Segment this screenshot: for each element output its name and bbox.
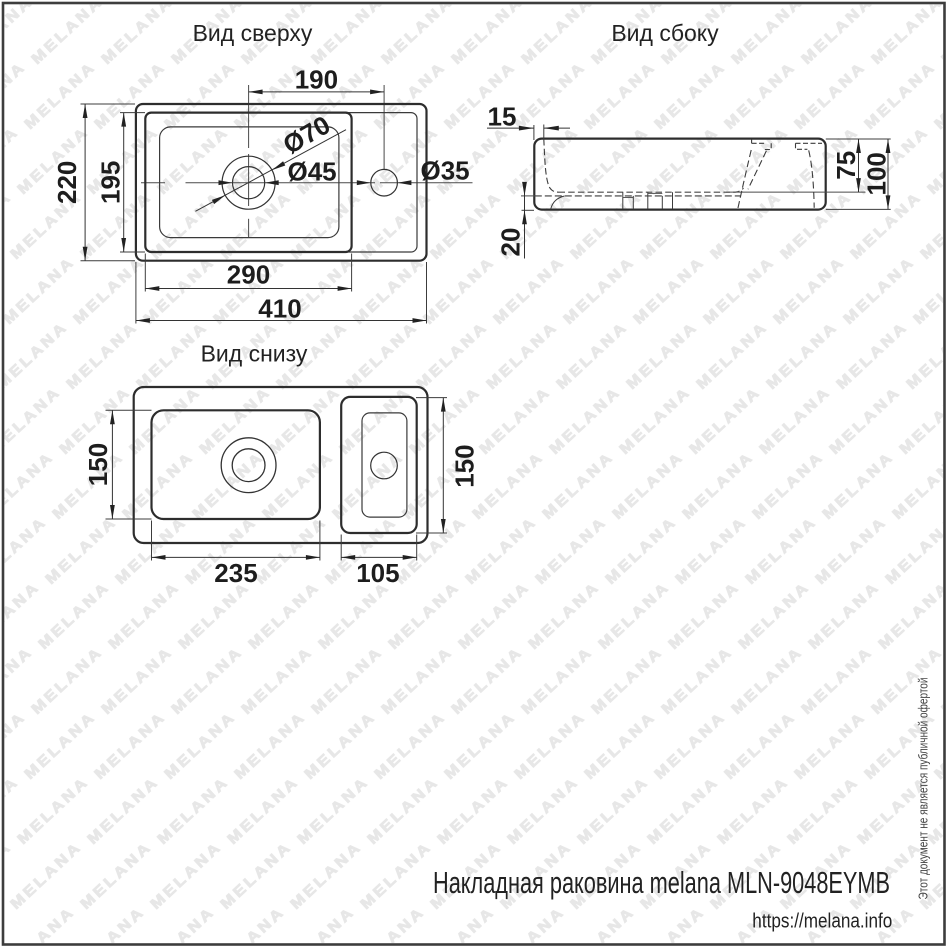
svg-text:Ø35: Ø35 — [421, 156, 470, 186]
svg-text:Накладная раковина melana MLN-: Накладная раковина melana MLN-9048EYMB — [433, 865, 890, 900]
svg-text:190: 190 — [295, 65, 338, 95]
svg-text:Этот документ не является публ: Этот документ не является публичной офер… — [916, 678, 931, 900]
svg-text:15: 15 — [488, 102, 517, 132]
svg-text:20: 20 — [496, 228, 526, 257]
svg-text:100: 100 — [862, 152, 892, 195]
svg-text:220: 220 — [52, 161, 82, 204]
svg-text:Вид сбоку: Вид сбоку — [611, 20, 719, 46]
svg-text:Вид сверху: Вид сверху — [193, 20, 313, 46]
svg-text:150: 150 — [83, 443, 113, 486]
svg-text:75: 75 — [831, 151, 861, 180]
svg-text:290: 290 — [227, 260, 270, 290]
svg-text:195: 195 — [96, 161, 126, 204]
svg-text:https://melana.info: https://melana.info — [752, 911, 892, 933]
svg-text:105: 105 — [356, 558, 399, 588]
svg-text:Вид снизу: Вид снизу — [201, 341, 308, 367]
svg-text:Ø45: Ø45 — [288, 156, 337, 186]
svg-text:410: 410 — [258, 294, 301, 324]
svg-text:150: 150 — [450, 444, 480, 487]
svg-text:235: 235 — [214, 558, 257, 588]
